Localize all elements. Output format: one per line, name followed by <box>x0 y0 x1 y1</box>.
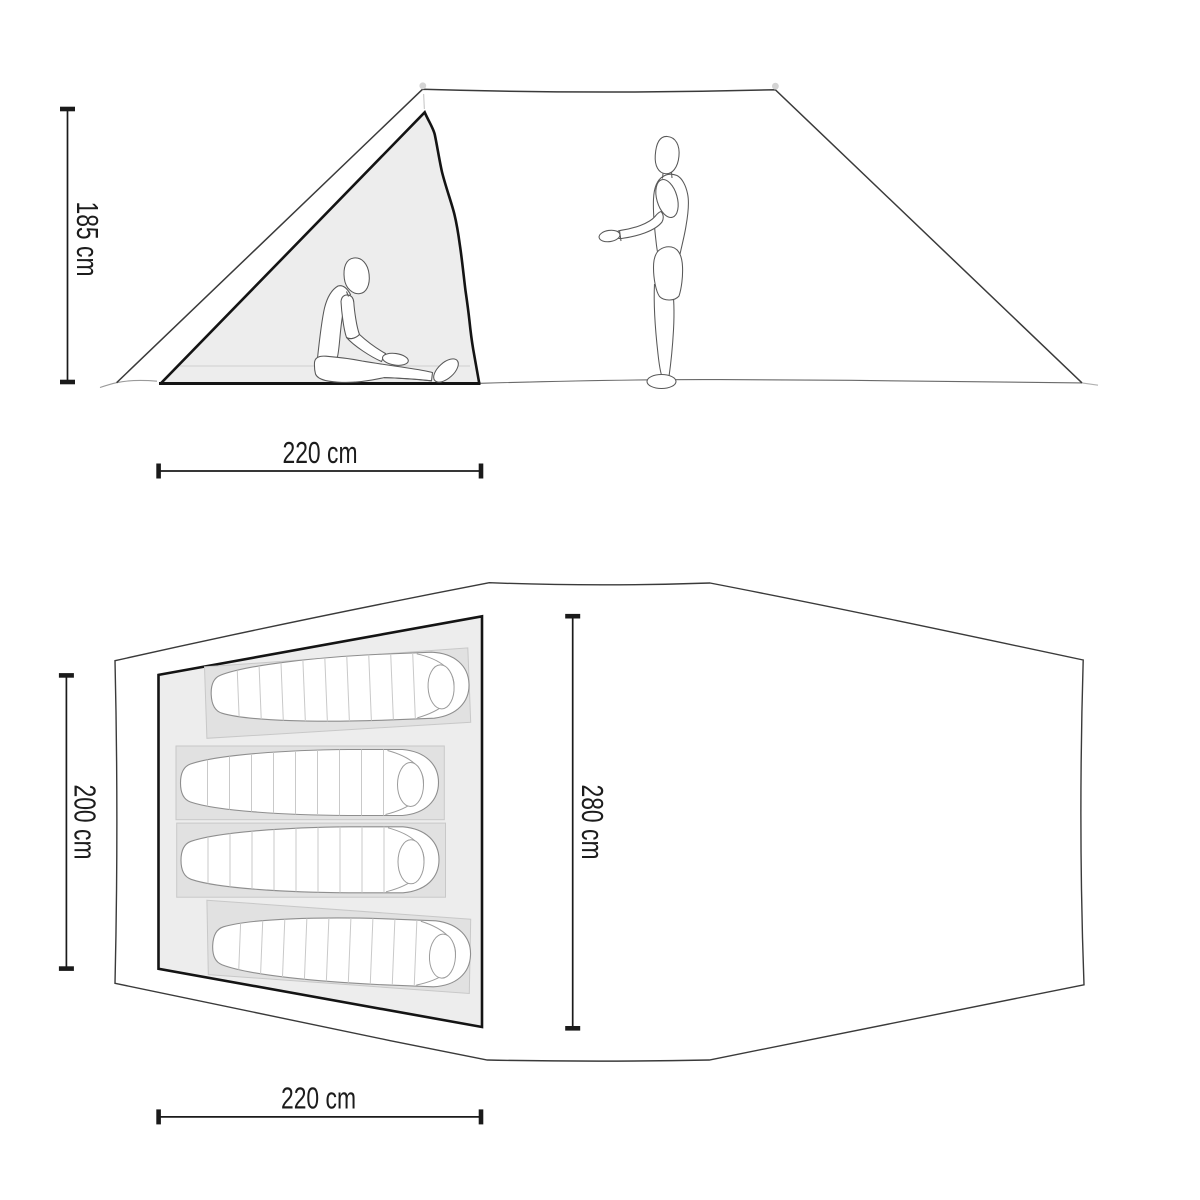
svg-text:220 cm: 220 cm <box>281 1081 356 1116</box>
svg-text:220 cm: 220 cm <box>283 435 358 470</box>
svg-text:280 cm: 280 cm <box>575 785 610 860</box>
svg-text:185 cm: 185 cm <box>70 202 105 277</box>
svg-text:200 cm: 200 cm <box>68 785 103 860</box>
